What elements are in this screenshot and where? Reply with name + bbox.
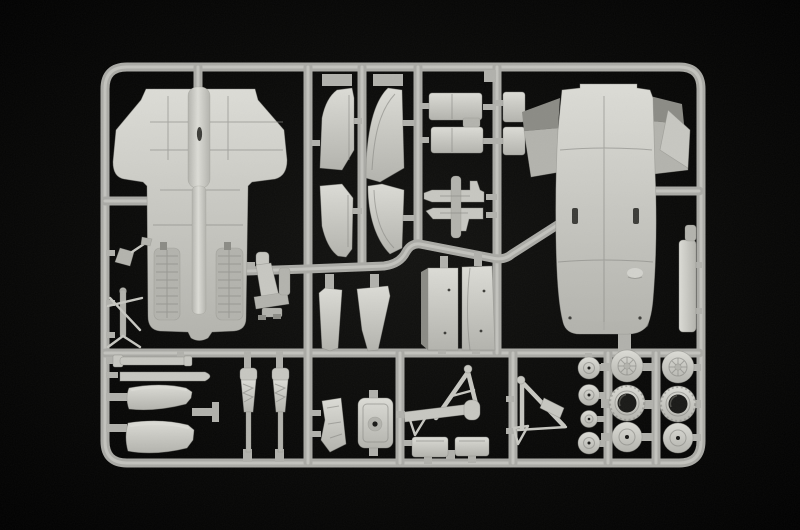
sprue-photo-canvas: Upper fuselage and wing section Ejection… (0, 0, 800, 530)
photo-grain-overlay (0, 0, 800, 530)
sprue-photo: Upper fuselage and wing section Ejection… (0, 0, 800, 530)
